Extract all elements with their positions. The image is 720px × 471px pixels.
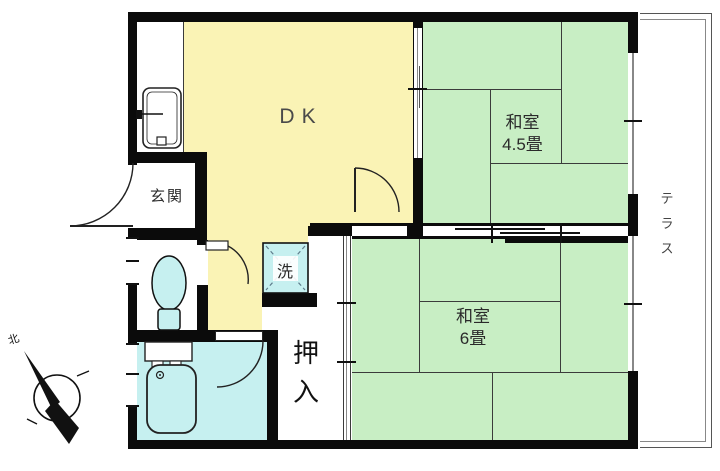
dk-label: DK — [265, 105, 337, 129]
dk-door-arc — [355, 168, 399, 212]
bathtub — [147, 365, 196, 433]
bath-door-arc — [217, 341, 263, 387]
laundry-label: 洗 — [277, 258, 293, 282]
kitchen-sink-drain — [157, 137, 166, 145]
oshiire-label: 押入 — [289, 334, 323, 412]
vanity-counter — [145, 342, 192, 361]
floor-plan: DK 和室 4.5畳 和室 6畳 玄関 押入 洗 テラス 北 — [0, 0, 720, 471]
washitsu-45-label: 和室 4.5畳 — [455, 112, 590, 156]
toilet-bowl — [152, 256, 186, 310]
entrance-door-arc — [70, 163, 133, 226]
faucet — [136, 110, 142, 119]
bathtub-drain-dot — [159, 374, 161, 376]
toilet-tank — [158, 309, 180, 330]
compass-mark — [27, 419, 37, 424]
toilet-door-leaf — [206, 241, 228, 250]
toilet-door-arc — [228, 246, 248, 284]
washitsu-45-name: 和室 — [455, 112, 590, 134]
washitsu-6-name: 和室 — [408, 306, 538, 328]
genkan-label: 玄関 — [139, 185, 195, 206]
washitsu-6-size: 6畳 — [408, 328, 538, 350]
north-arrow-tail — [45, 400, 79, 444]
north-arrow-blade — [24, 351, 60, 409]
washitsu-6-label: 和室 6畳 — [408, 306, 538, 350]
terrace-label: テラス — [659, 186, 675, 261]
washitsu-45-size: 4.5畳 — [455, 134, 590, 156]
fixtures-layer — [0, 0, 720, 471]
compass-mark — [77, 371, 89, 376]
